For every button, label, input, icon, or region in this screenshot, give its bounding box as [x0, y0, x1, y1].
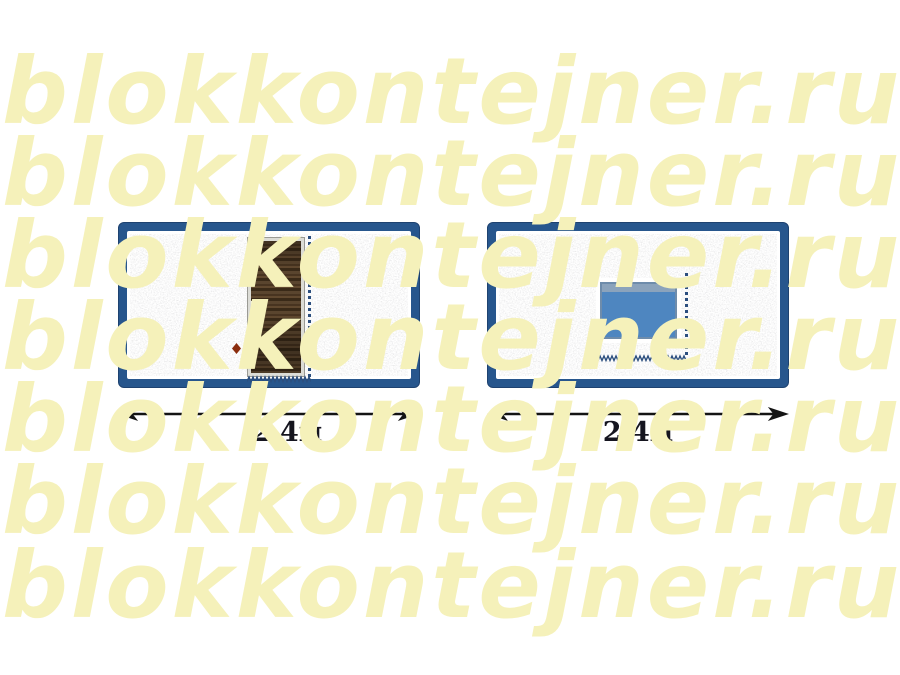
door-frame — [247, 237, 305, 377]
window-sash — [602, 284, 675, 292]
watermark-row: blokkontejner.ru — [2, 128, 900, 220]
stitch-zigzag — [594, 354, 686, 362]
diagram-canvas: 2,4м 2,4м blokkontejn — [0, 0, 900, 675]
stitch-zigzag — [247, 375, 311, 383]
watermark-row: blokkontejner.ru — [2, 540, 900, 632]
container-frame — [118, 222, 420, 388]
container-wall — [127, 231, 411, 379]
window — [600, 282, 677, 339]
stitch-dots — [685, 273, 688, 355]
watermark-row: blokkontejner.ru — [2, 456, 900, 548]
container-frame — [487, 222, 789, 388]
watermark-row: blokkontejner.ru — [2, 46, 900, 138]
dimension-label: 2,4м — [118, 417, 420, 448]
stitch-dots — [308, 236, 311, 377]
door-latch-notch — [251, 301, 259, 314]
door — [251, 241, 301, 373]
dimension-label: 2,4м — [487, 417, 789, 448]
container-wall — [496, 231, 780, 379]
